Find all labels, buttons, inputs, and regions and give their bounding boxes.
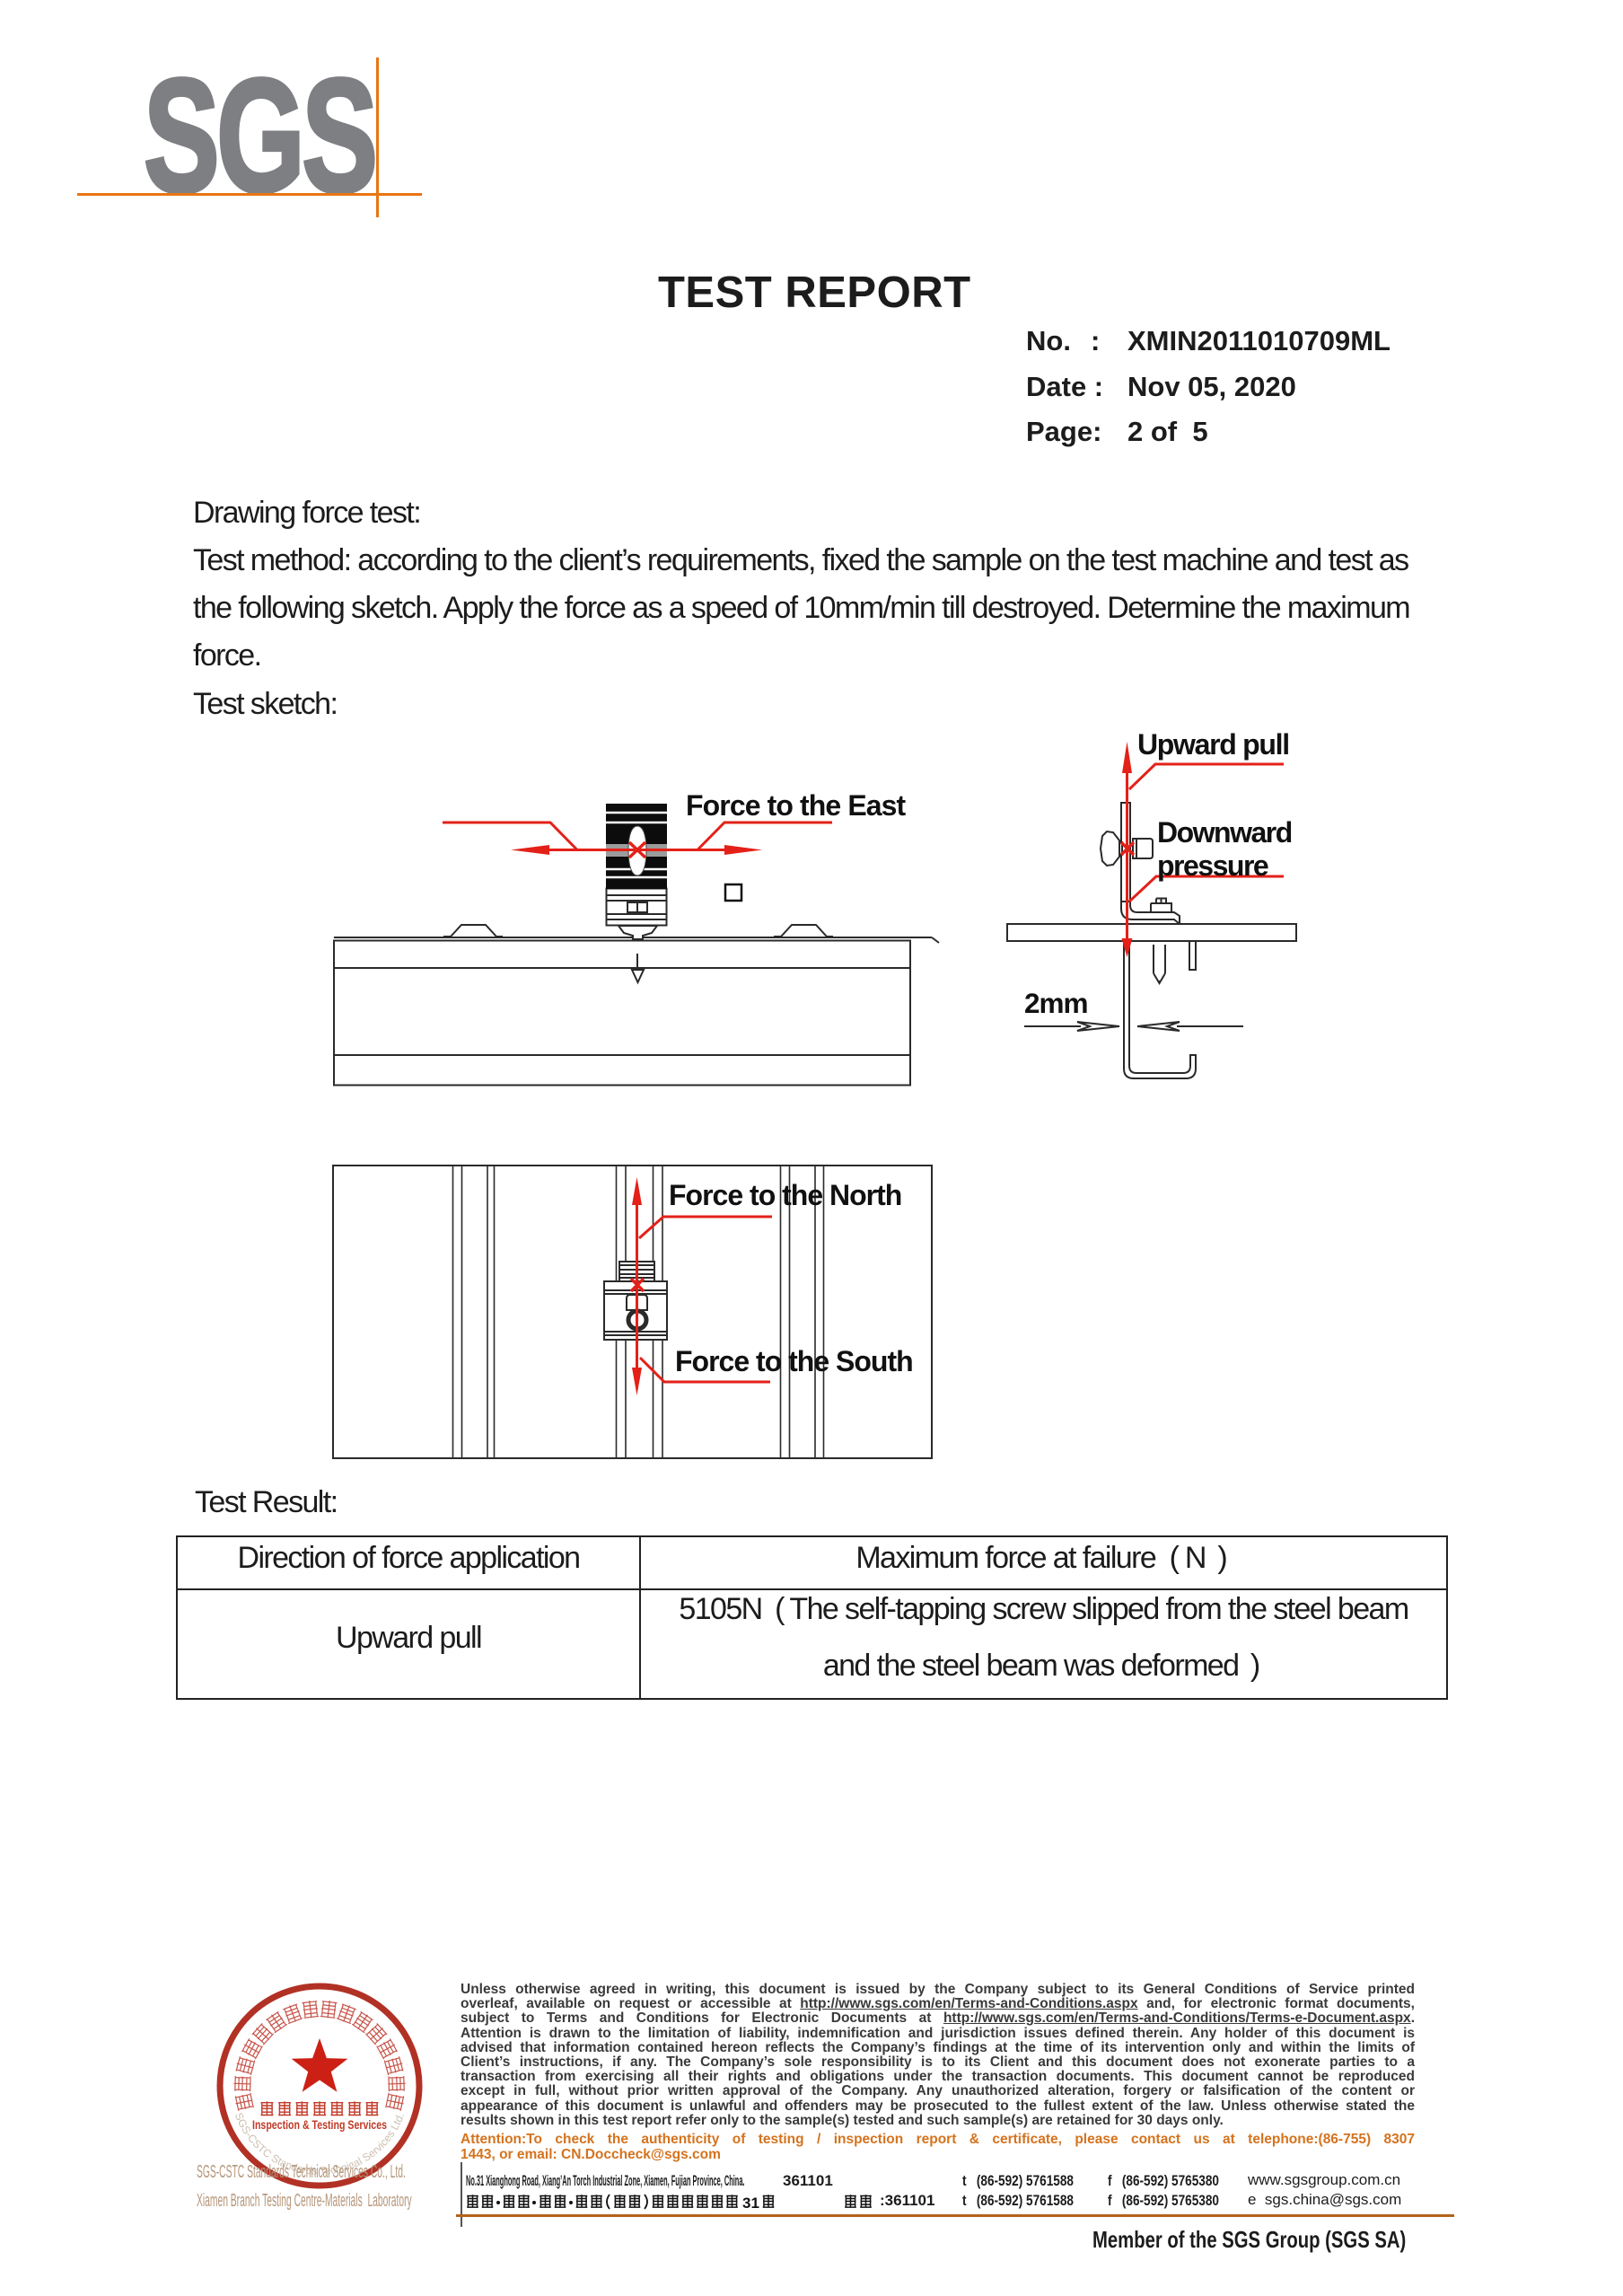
- svg-text:Downward: Downward: [1157, 816, 1292, 849]
- svg-text:Inspection & Testing Services: Inspection & Testing Services: [252, 2118, 387, 2132]
- svg-text:pressure: pressure: [1157, 849, 1268, 882]
- svg-text:2mm: 2mm: [1024, 987, 1088, 1019]
- svg-text:Force to the North: Force to the North: [669, 1179, 901, 1211]
- svg-text:Force to the East: Force to the East: [686, 789, 907, 822]
- svg-text:Force to the South: Force to the South: [675, 1345, 913, 1377]
- svg-text:31: 31: [742, 2195, 759, 2211]
- svg-text:Upward pull: Upward pull: [1137, 728, 1289, 761]
